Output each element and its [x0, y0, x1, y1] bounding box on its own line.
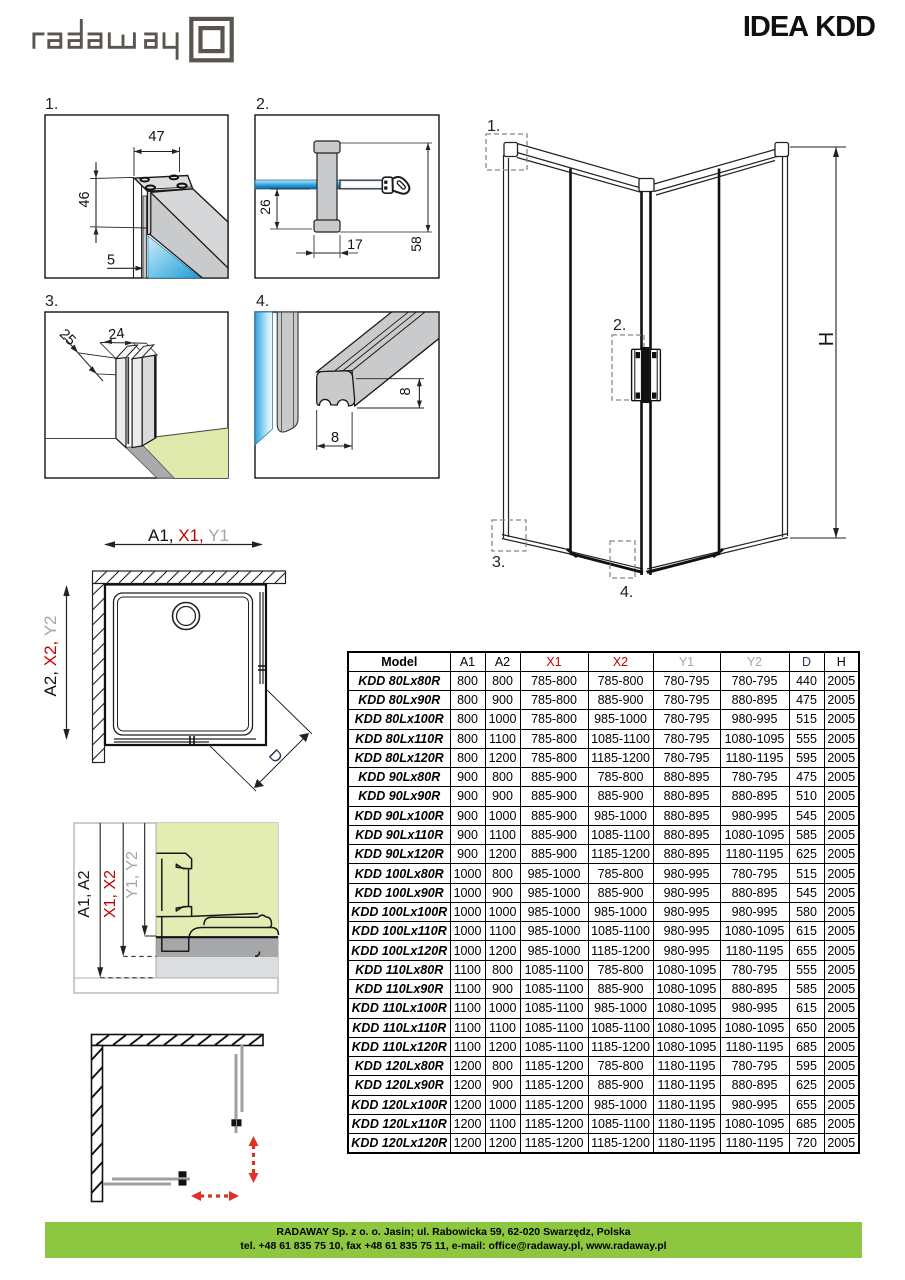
svg-text:1.: 1. — [487, 118, 500, 135]
svg-text:58: 58 — [408, 236, 424, 252]
svg-text:5: 5 — [107, 253, 115, 269]
svg-text:2.: 2. — [613, 317, 626, 334]
svg-text:8: 8 — [398, 387, 414, 395]
svg-text:3.: 3. — [492, 554, 505, 571]
svg-text:47: 47 — [148, 129, 164, 145]
svg-text:A1, A2: A1, A2 — [76, 870, 93, 917]
svg-text:A2, X2, Y2: A2, X2, Y2 — [41, 616, 60, 697]
svg-text:24: 24 — [108, 326, 126, 344]
svg-text:4.: 4. — [620, 584, 633, 601]
svg-text:26: 26 — [257, 199, 273, 215]
svg-text:Y1, Y2: Y1, Y2 — [124, 851, 141, 899]
svg-text:8: 8 — [331, 430, 339, 446]
svg-text:46: 46 — [77, 191, 93, 207]
svg-text:X1, X2: X1, X2 — [102, 870, 119, 918]
svg-text:H: H — [816, 332, 838, 346]
svg-text:D: D — [265, 747, 285, 767]
svg-text:17: 17 — [347, 236, 363, 252]
svg-text:A1, X1, Y1: A1, X1, Y1 — [148, 526, 229, 545]
